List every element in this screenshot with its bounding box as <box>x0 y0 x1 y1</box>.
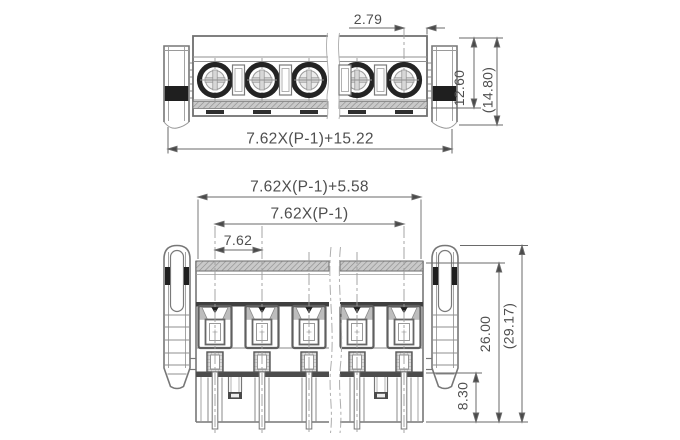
top-view: 2.79 12.60 (14.80) 7.62X(P-1)+15.22 <box>164 11 503 154</box>
dim-overall-width-label: 7.62X(P-1)+15.22 <box>246 131 374 148</box>
front-view: 7.62X(P-1)+5.58 7.62X(P-1) 7.62 26.00 <box>164 179 528 435</box>
dim-pitch-label: 7.62 <box>224 232 252 248</box>
top-view-body <box>193 28 427 119</box>
dim-body-height-label: 12.60 <box>451 70 467 107</box>
dim-overall-width: 7.62X(P-1)+15.22 <box>168 127 452 154</box>
dim-pitch: 7.62 <box>215 232 262 253</box>
dim-overall-height-ref-front-label: (29.17) <box>501 303 517 349</box>
flange-left <box>164 46 194 128</box>
latch-right <box>426 246 458 389</box>
hatched-rail <box>193 102 328 109</box>
dim-outer-width-label: 7.62X(P-1)+5.58 <box>250 179 369 196</box>
dim-pole-span: 7.62X(P-1) <box>215 206 404 227</box>
dim-screw-to-edge: 2.79 <box>349 11 445 35</box>
hatched-rail <box>339 102 427 109</box>
break-line <box>330 247 332 433</box>
dim-overall-height-ref-label: (14.80) <box>480 67 496 113</box>
latch-left <box>164 246 196 389</box>
top-rail <box>340 261 423 271</box>
dim-height-body-label: 26.00 <box>477 316 493 353</box>
technical-drawing-page: 2.79 12.60 (14.80) 7.62X(P-1)+15.22 <box>0 0 680 440</box>
connector-drawing: 2.79 12.60 (14.80) 7.62X(P-1)+15.22 <box>0 0 680 440</box>
front-view-body <box>196 226 423 434</box>
dim-screw-to-edge-label: 2.79 <box>354 11 382 27</box>
dim-pole-span-label: 7.62X(P-1) <box>271 206 349 223</box>
dim-pin-length-label: 8.30 <box>455 382 471 410</box>
